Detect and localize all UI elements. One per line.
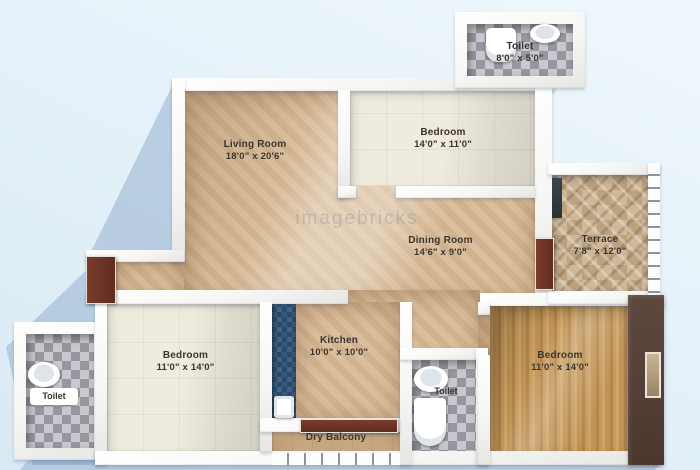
main-entrance-door <box>86 256 116 304</box>
bedroom-top-label: Bedroom 14'0" x 11'0" <box>368 126 518 151</box>
wall-bedroom-top-bottom-a <box>338 186 356 198</box>
dry-balcony-name: Dry Balcony <box>306 432 367 443</box>
toilet-mid-name: Toilet <box>434 386 457 396</box>
terrace-label: Terrace 7'8" x 12'0" <box>550 233 650 258</box>
bedroom-right-name: Bedroom <box>537 350 582 361</box>
bedroom-left-label: Bedroom 11'0" x 14'0" <box>108 349 263 374</box>
dining-room-label: Dining Room 14'6" x 9'0" <box>363 234 518 259</box>
bedroom-right-floor <box>490 306 628 453</box>
toilet-top-name: Toilet <box>506 41 533 52</box>
picture-frame <box>645 352 661 398</box>
living-room-name: Living Room <box>224 139 287 150</box>
bedroom-top-name: Bedroom <box>420 127 465 138</box>
bedroom-right-size: 11'0" x 14'0" <box>484 362 636 374</box>
kitchen-name: Kitchen <box>320 335 358 346</box>
wall-left <box>172 78 185 262</box>
watermark: imagebricks <box>252 208 462 230</box>
toilet-mid-label: Toilet <box>418 384 474 398</box>
floor-plan-canvas: Toilet 8'0" x 5'0" Living Room 18'0" x 2… <box>0 0 700 470</box>
wall-bedroom-top-left <box>338 90 350 198</box>
wall-bedroom-left-left <box>95 302 107 465</box>
wall-kitchen-right <box>400 302 412 465</box>
toilet-left-label: Toilet <box>30 388 78 405</box>
bedroom-left-floor <box>107 302 260 451</box>
bedroom-top-size: 14'0" x 11'0" <box>368 139 518 151</box>
wall-bedroom-top-bottom-b <box>396 186 535 198</box>
bedroom-left-size: 11'0" x 14'0" <box>108 362 263 374</box>
kitchen-sink <box>274 396 294 418</box>
terrace-name: Terrace <box>582 234 619 245</box>
kitchen-size: 10'0" x 10'0" <box>283 347 395 359</box>
dining-room-size: 14'6" x 9'0" <box>363 247 518 259</box>
dining-room-name: Dining Room <box>408 235 472 246</box>
toilet-left-sink-icon <box>28 362 60 387</box>
wall-bedroom-right-left-a <box>478 302 490 315</box>
living-room-size: 18'0" x 20'6" <box>180 151 330 163</box>
kitchen-label: Kitchen 10'0" x 10'0" <box>283 334 395 359</box>
toilet-top-size: 8'0" x 5'0" <box>459 53 581 65</box>
wall-terrace-top <box>548 163 660 175</box>
toilet-mid-wc-icon <box>414 398 446 446</box>
terrace-window <box>552 178 562 218</box>
bedroom-right-label: Bedroom 11'0" x 14'0" <box>484 349 636 374</box>
toilet-left-name: Toilet <box>42 391 65 401</box>
kitchen-floor <box>296 302 400 418</box>
shadow-left-upper <box>86 78 176 262</box>
wall-toilet-mid-top <box>400 348 488 360</box>
dry-balcony-label: Dry Balcony <box>278 431 394 444</box>
watermark-text: imagebricks <box>295 208 418 229</box>
toilet-top-label: Toilet 8'0" x 5'0" <box>459 40 581 65</box>
bedroom-left-name: Bedroom <box>163 350 208 361</box>
living-room-label: Living Room 18'0" x 20'6" <box>180 138 330 163</box>
balcony-railing <box>272 453 400 465</box>
wall-mid-horizontal <box>86 290 348 304</box>
terrace-size: 7'8" x 12'0" <box>550 246 650 258</box>
